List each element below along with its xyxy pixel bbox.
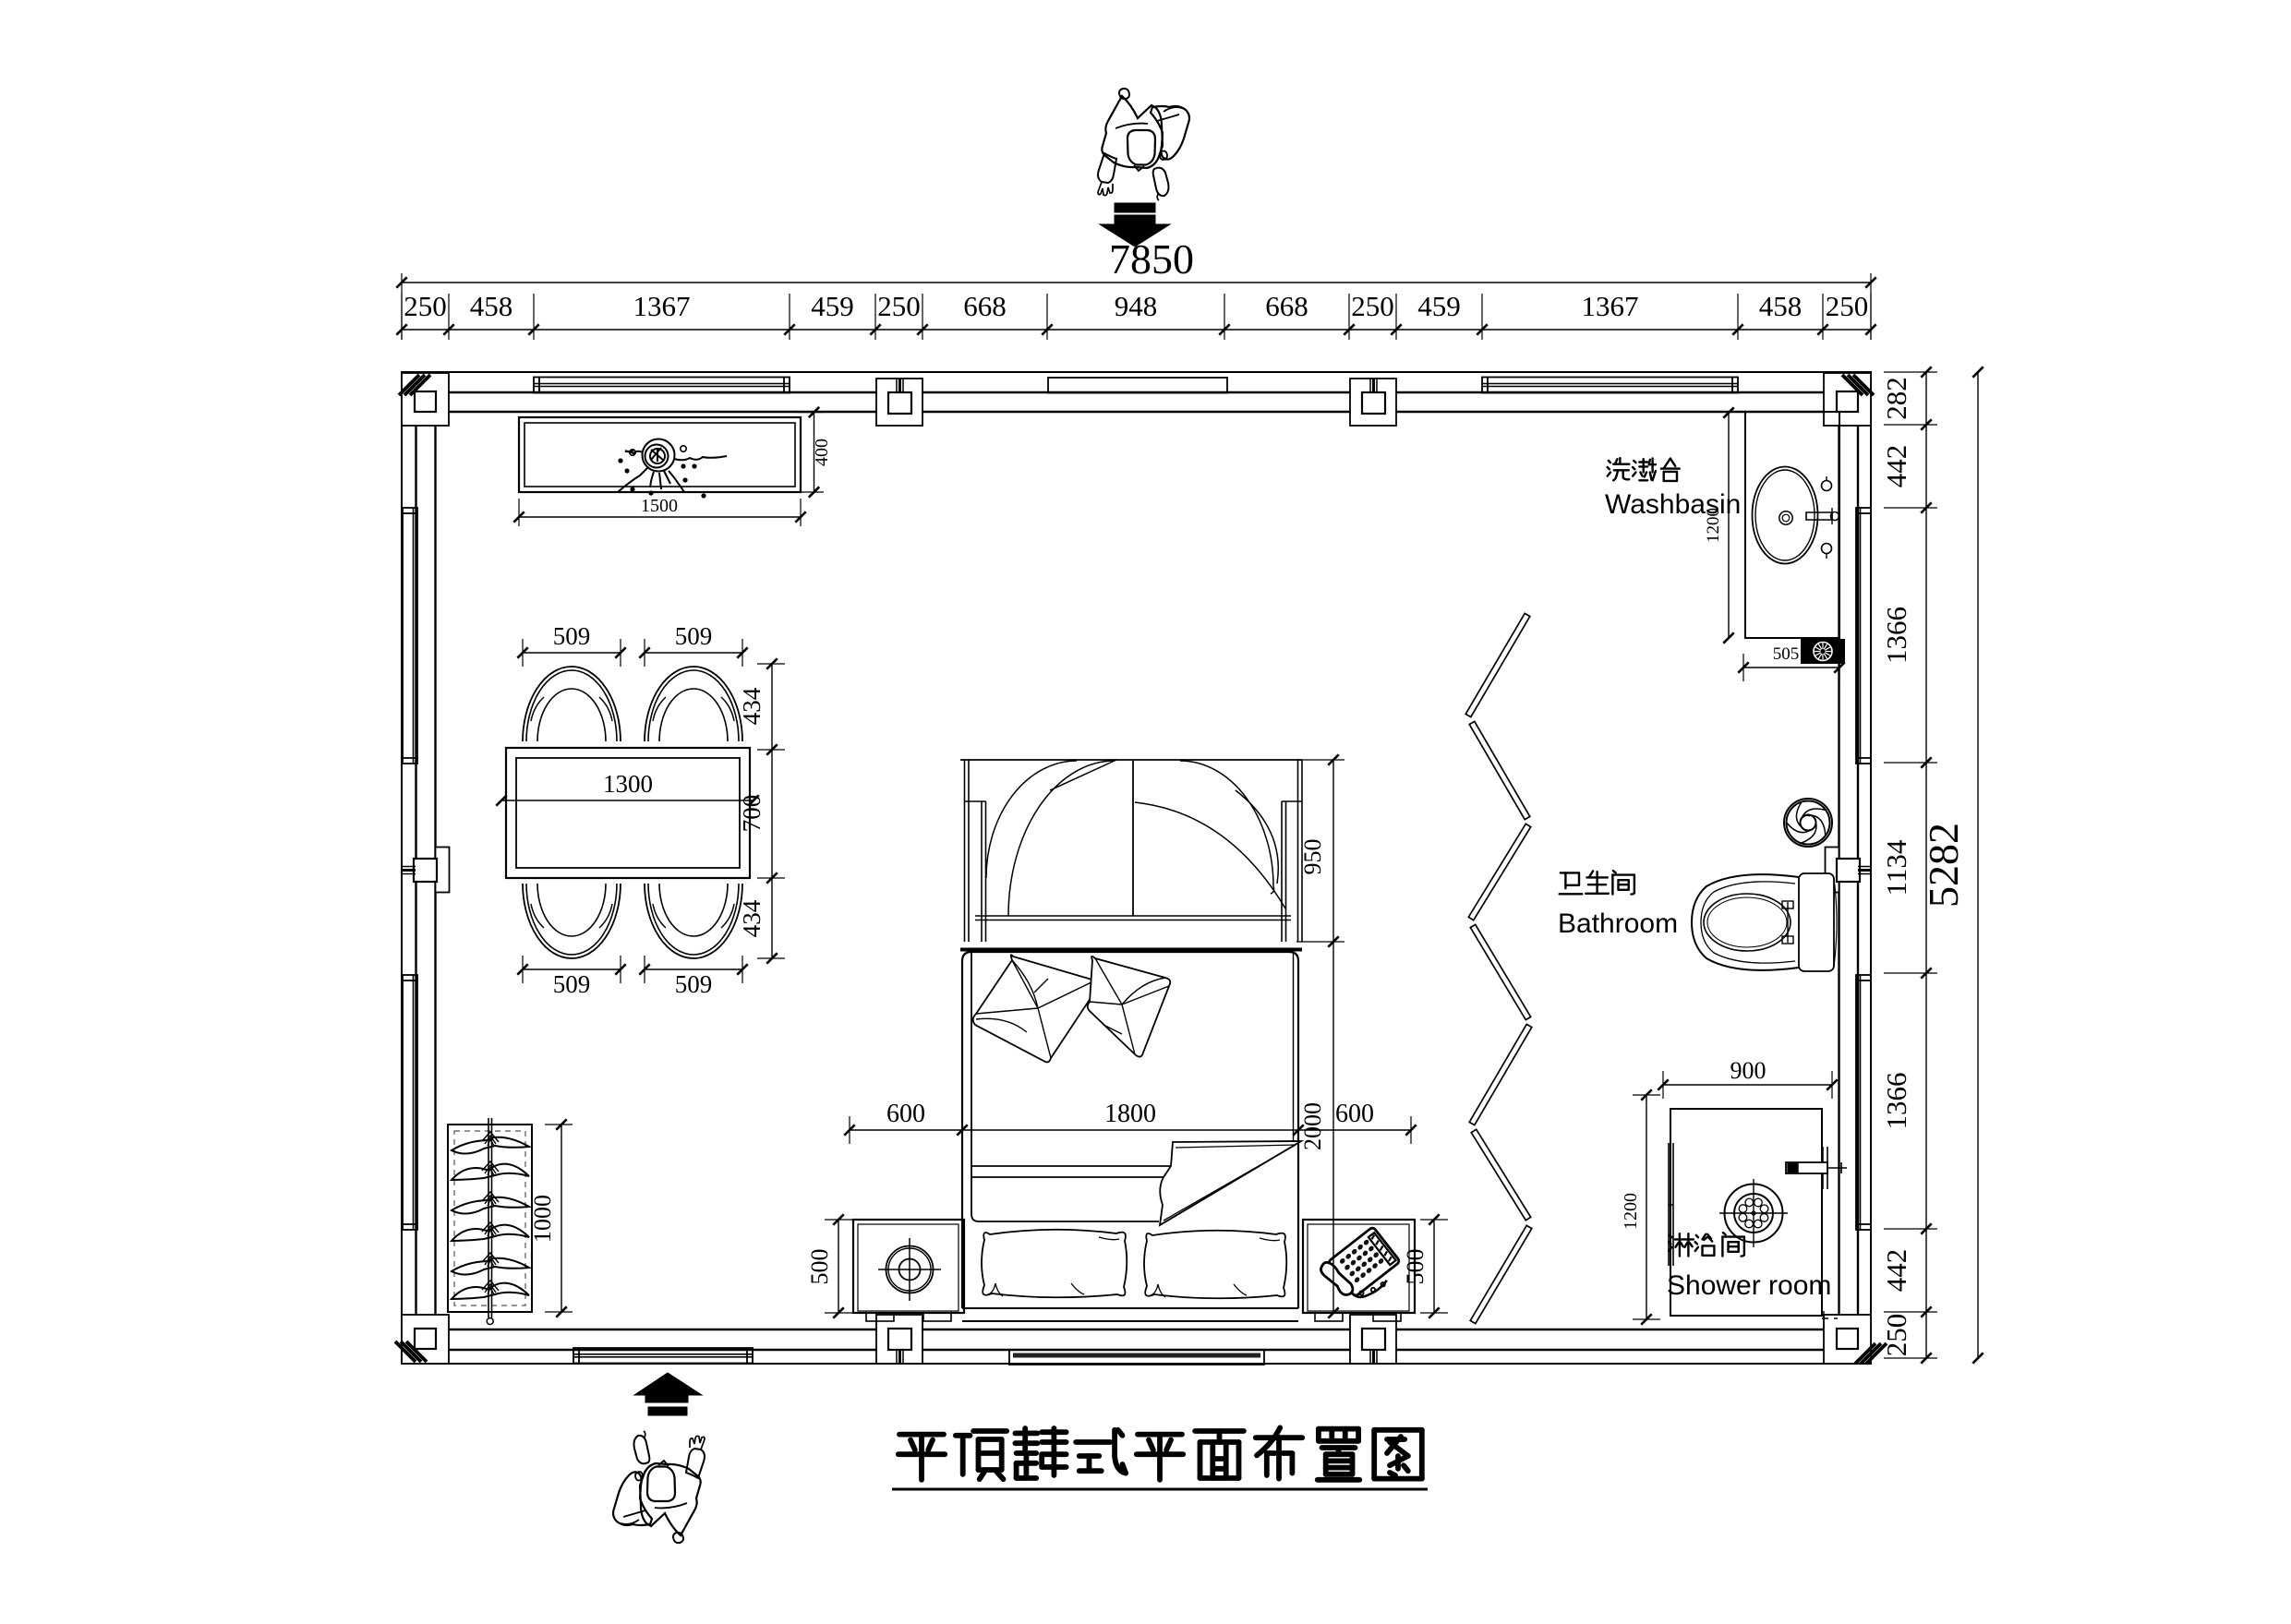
svg-text:509: 509 [675, 622, 713, 650]
svg-text:1200: 1200 [1621, 1193, 1641, 1230]
svg-text:400: 400 [812, 439, 832, 466]
svg-text:1134: 1134 [1880, 839, 1912, 896]
svg-text:250: 250 [404, 290, 447, 322]
svg-text:509: 509 [553, 970, 591, 998]
svg-text:1366: 1366 [1880, 1073, 1912, 1130]
svg-text:600: 600 [1335, 1100, 1374, 1128]
svg-text:459: 459 [811, 290, 854, 322]
svg-text:700: 700 [738, 795, 766, 833]
svg-text:1800: 1800 [1104, 1100, 1156, 1128]
svg-text:1367: 1367 [633, 290, 691, 322]
svg-text:2000: 2000 [1299, 1102, 1326, 1150]
svg-text:950: 950 [1299, 839, 1326, 875]
svg-text:458: 458 [1759, 290, 1803, 322]
svg-text:250: 250 [1351, 290, 1394, 322]
svg-text:459: 459 [1417, 290, 1461, 322]
svg-text:250: 250 [877, 290, 921, 322]
svg-text:1500: 1500 [641, 496, 678, 516]
svg-text:500: 500 [1402, 1249, 1429, 1285]
svg-text:948: 948 [1115, 290, 1158, 322]
svg-text:Shower room: Shower room [1667, 1270, 1831, 1301]
svg-text:Bathroom: Bathroom [1558, 908, 1678, 939]
svg-text:1367: 1367 [1582, 290, 1639, 322]
svg-text:434: 434 [738, 899, 766, 937]
svg-text:509: 509 [553, 622, 591, 650]
svg-text:442: 442 [1880, 1249, 1912, 1293]
svg-text:442: 442 [1880, 445, 1912, 488]
svg-text:500: 500 [806, 1249, 833, 1285]
svg-text:250: 250 [1826, 290, 1869, 322]
svg-text:1366: 1366 [1880, 607, 1912, 664]
svg-text:Washbasin: Washbasin [1605, 489, 1741, 520]
svg-text:458: 458 [470, 290, 513, 322]
svg-text:505: 505 [1773, 644, 1800, 664]
svg-text:1000: 1000 [529, 1195, 556, 1243]
svg-text:5282: 5282 [1920, 823, 1967, 908]
svg-text:900: 900 [1730, 1057, 1766, 1084]
svg-text:668: 668 [963, 290, 1007, 322]
svg-text:600: 600 [886, 1100, 925, 1128]
svg-text:7850: 7850 [1109, 235, 1194, 283]
svg-text:250: 250 [1880, 1314, 1912, 1357]
svg-text:1300: 1300 [603, 770, 653, 798]
svg-text:434: 434 [738, 687, 766, 725]
svg-text:668: 668 [1265, 290, 1308, 322]
svg-text:282: 282 [1880, 377, 1912, 420]
svg-text:509: 509 [675, 970, 713, 998]
